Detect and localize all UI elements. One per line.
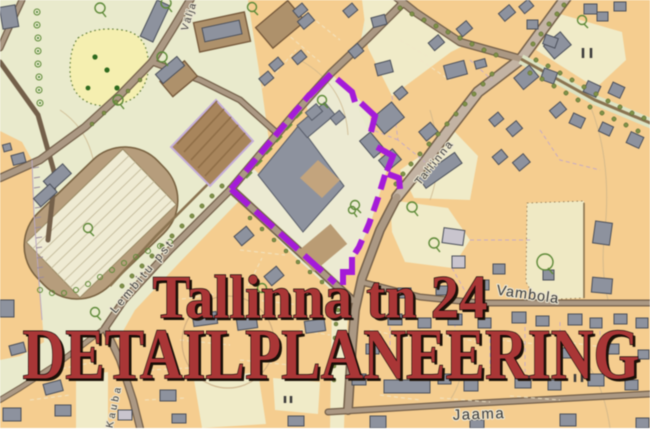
svg-text:Jaama: Jaama	[452, 405, 505, 424]
svg-text:DETAILPLANEERING: DETAILPLANEERING	[23, 315, 640, 395]
